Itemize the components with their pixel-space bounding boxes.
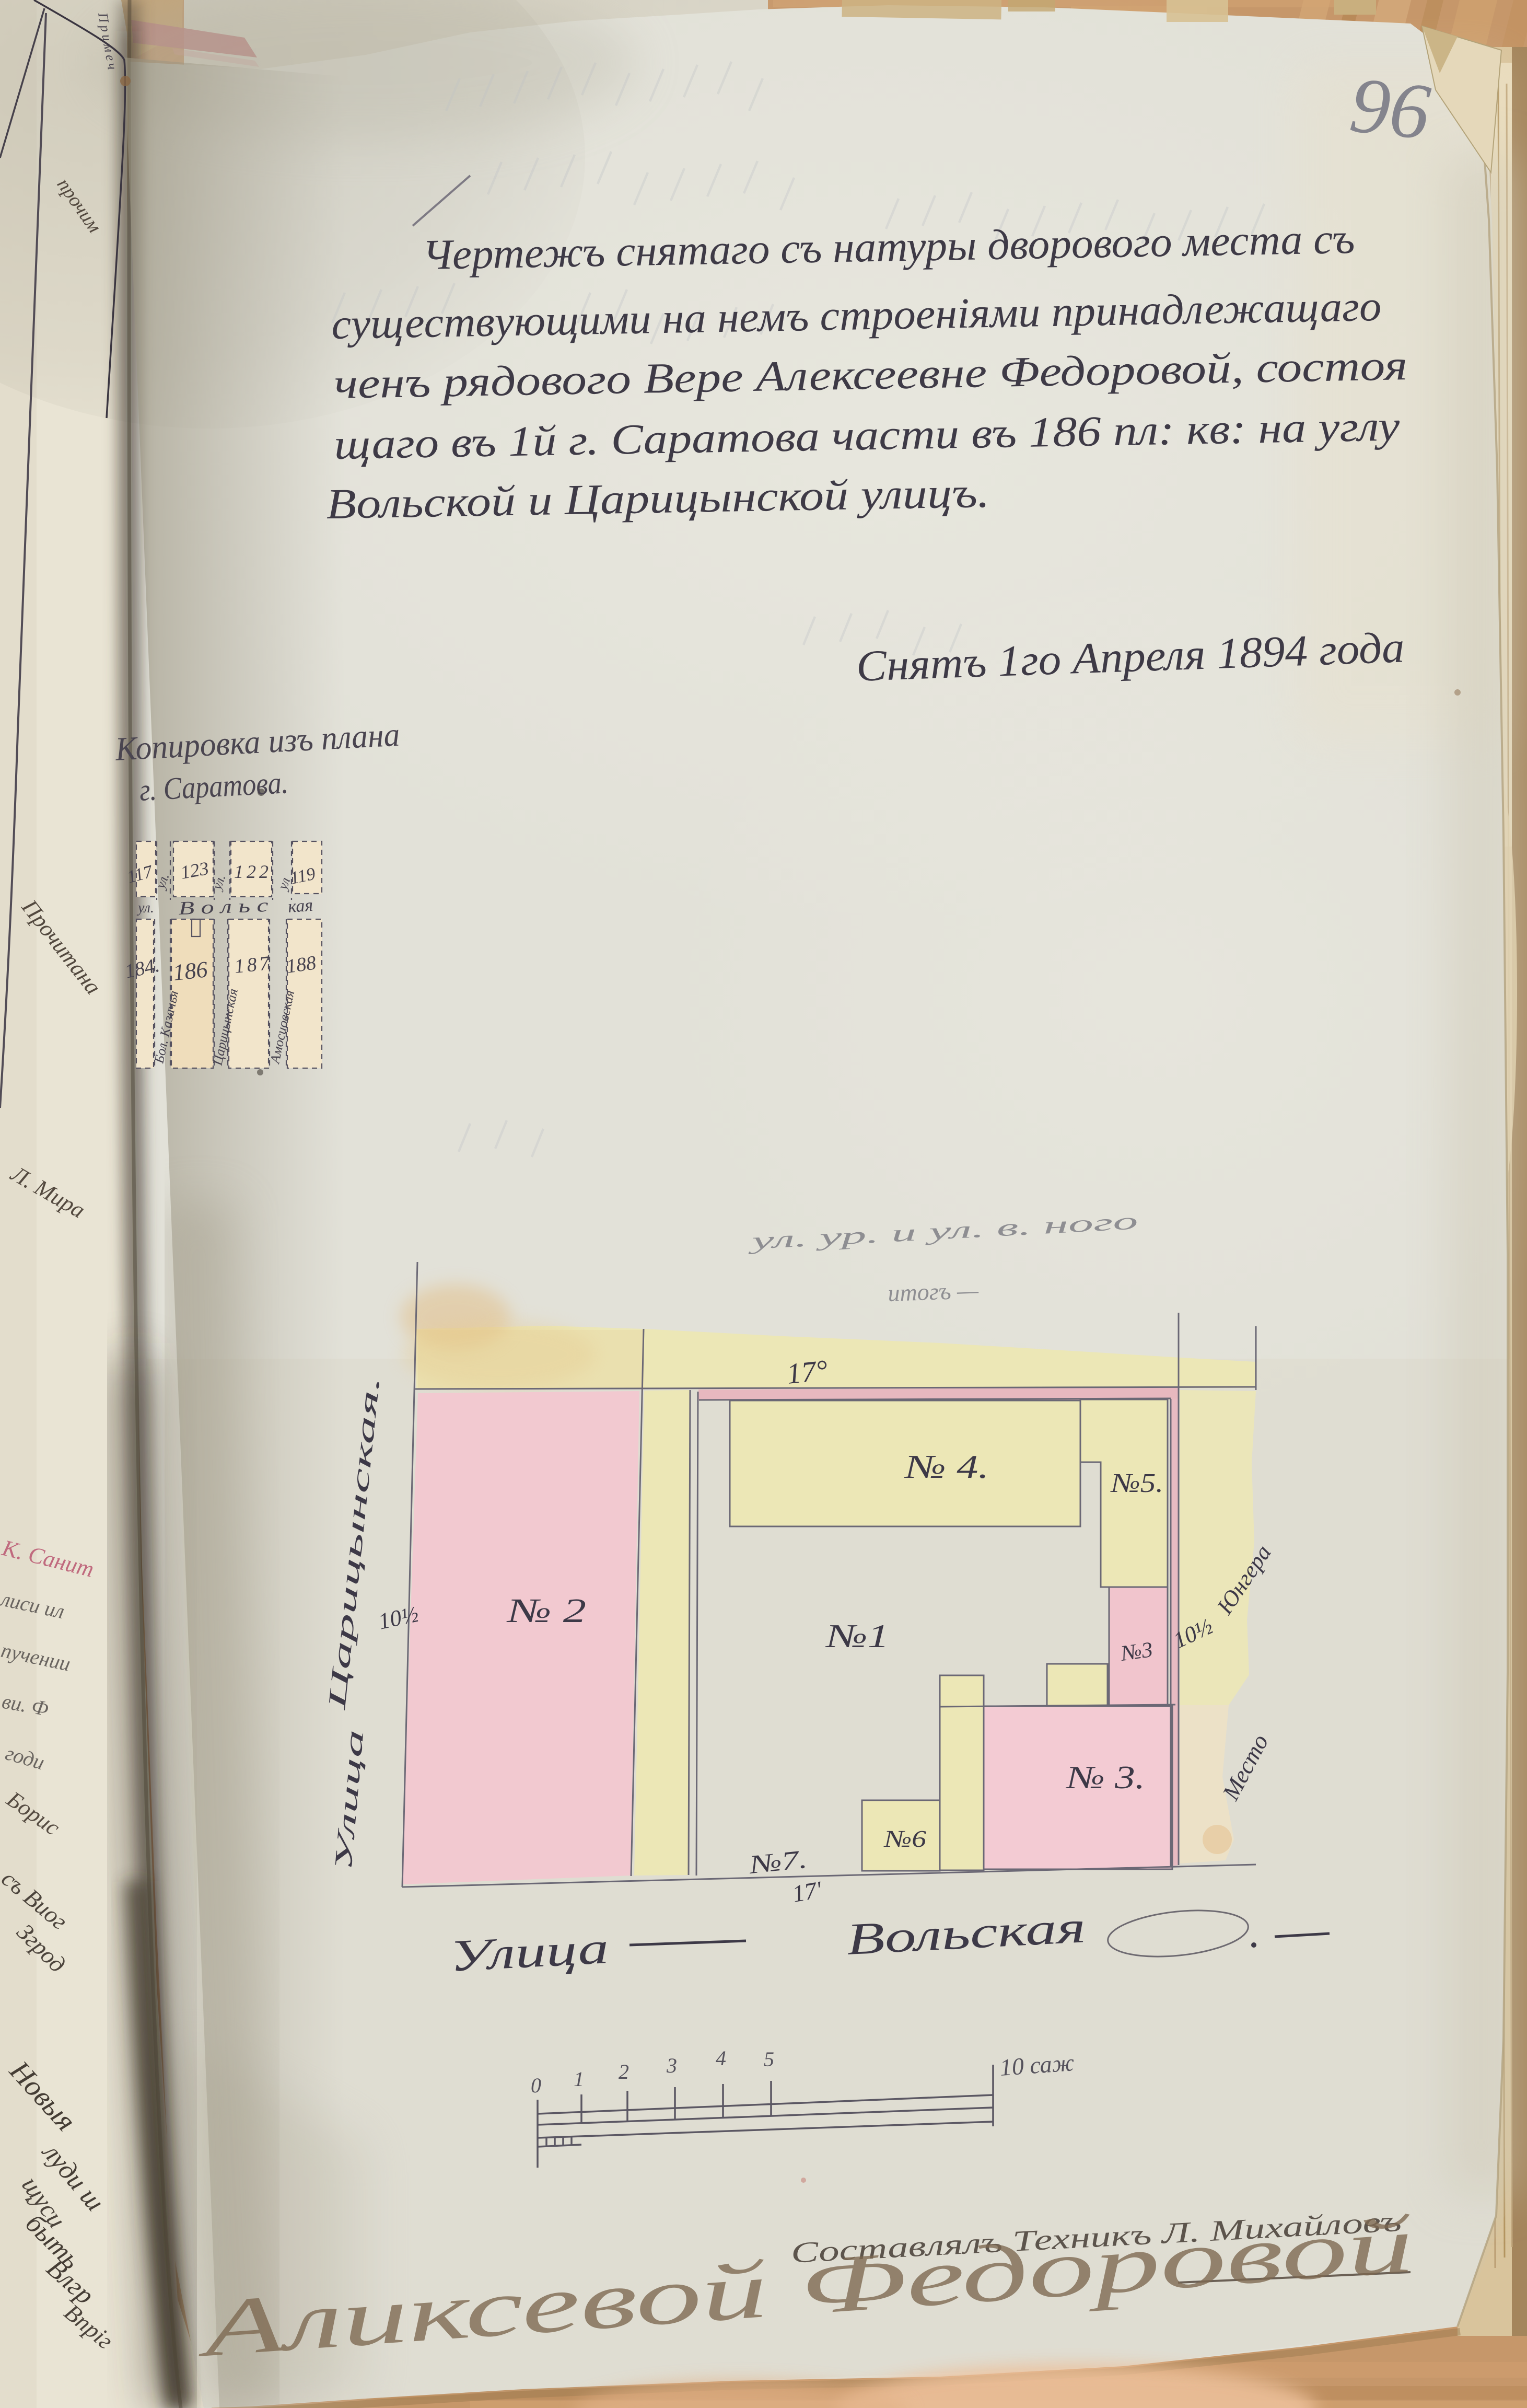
- svg-text:187: 187: [234, 952, 273, 978]
- svg-text:№5.: №5.: [1110, 1468, 1163, 1498]
- svg-text:№ 2: № 2: [506, 1592, 586, 1630]
- svg-text:1: 1: [574, 2067, 584, 2091]
- svg-text:ул.: ул.: [136, 900, 154, 916]
- svg-text:4: 4: [716, 2046, 726, 2070]
- svg-text:122: 122: [234, 861, 272, 882]
- svg-text:0: 0: [531, 2074, 541, 2097]
- svg-text:96: 96: [1346, 61, 1435, 156]
- svg-text:В о л ь с: В о л ь с: [178, 895, 269, 919]
- svg-text:№1: №1: [825, 1617, 889, 1654]
- svg-text:итогъ —: итогъ —: [888, 1277, 980, 1306]
- svg-text:17°: 17°: [785, 1354, 829, 1391]
- svg-text:3: 3: [666, 2054, 677, 2077]
- svg-text:10 саж: 10 саж: [999, 2049, 1075, 2081]
- svg-text:№ 4.: № 4.: [904, 1448, 989, 1485]
- svg-text:5: 5: [764, 2047, 774, 2071]
- svg-text:№7.: №7.: [747, 1844, 809, 1879]
- svg-text:№6: №6: [883, 1825, 926, 1852]
- svg-text:2: 2: [619, 2060, 629, 2083]
- svg-text:186: 186: [172, 956, 209, 986]
- svg-text:188: 188: [285, 952, 317, 978]
- svg-text:№3: №3: [1118, 1638, 1154, 1666]
- svg-text:17': 17': [790, 1876, 824, 1907]
- svg-text:кая: кая: [287, 896, 313, 917]
- svg-text:Улица: Улица: [448, 1923, 610, 1981]
- svg-text:№ 3.: № 3.: [1066, 1760, 1145, 1796]
